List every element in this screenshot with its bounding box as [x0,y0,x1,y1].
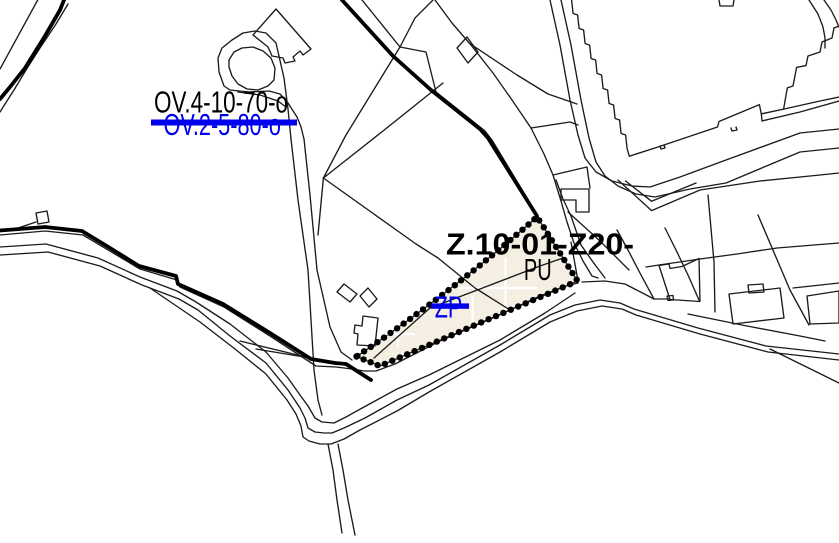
svg-text:PU: PU [524,251,552,287]
